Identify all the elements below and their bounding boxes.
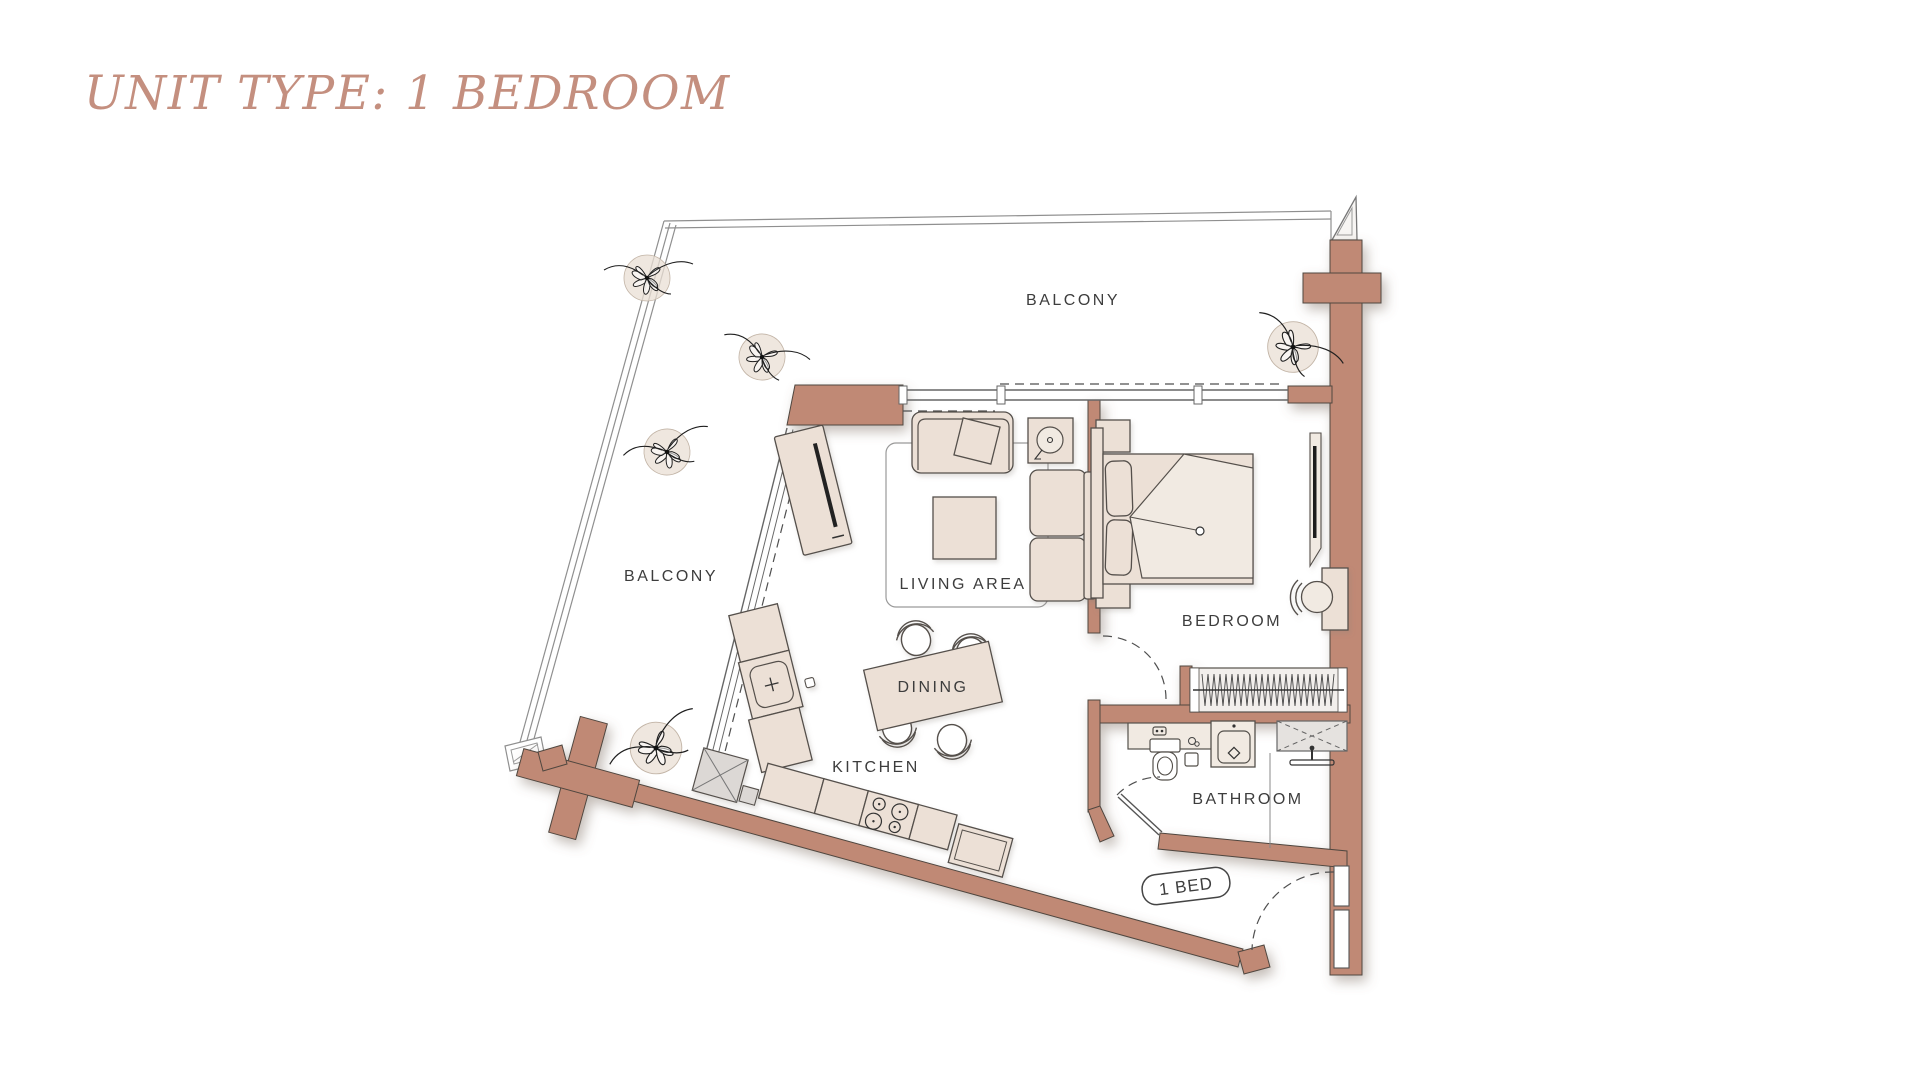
bathroom-fixtures: [1128, 721, 1347, 848]
floor-plan: BALCONY BALCONY LIVING AREA DINING KITCH…: [0, 0, 1920, 1080]
label-balcony-left: BALCONY: [624, 568, 718, 585]
label-living: LIVING AREA: [899, 576, 1026, 593]
unit-badge: 1 BED: [1140, 866, 1231, 907]
label-bedroom: BEDROOM: [1182, 613, 1282, 630]
label-balcony-top: BALCONY: [1026, 292, 1120, 309]
label-kitchen: KITCHEN: [832, 759, 920, 776]
label-dining: DINING: [898, 679, 969, 696]
wardrobe: [1190, 668, 1347, 712]
bedroom-furniture: [1091, 420, 1348, 630]
living-furniture: [774, 412, 1096, 601]
page-title: UNIT TYPE: 1 BEDROOM: [84, 66, 731, 121]
label-bathroom: BATHROOM: [1192, 791, 1303, 808]
